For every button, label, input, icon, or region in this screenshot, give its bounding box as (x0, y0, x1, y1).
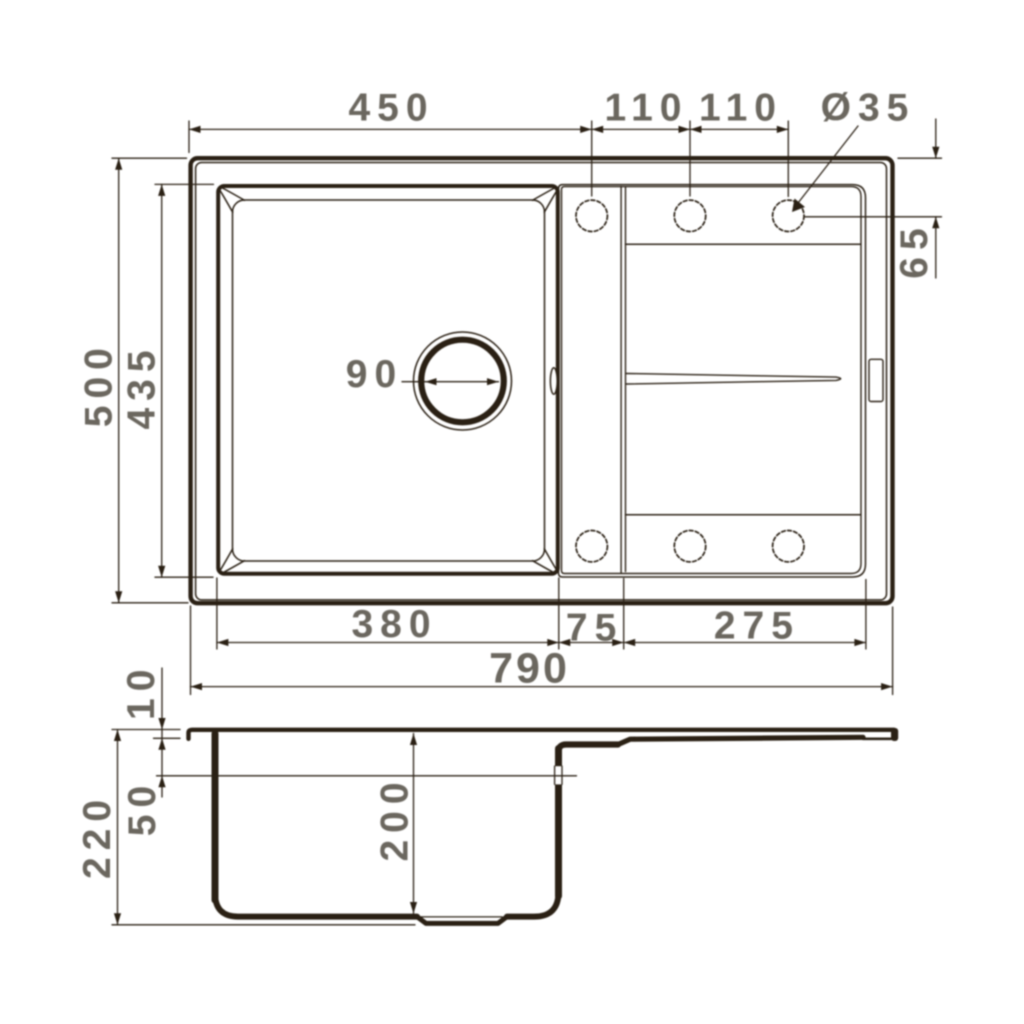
svg-text:10: 10 (120, 663, 163, 720)
svg-text:435: 435 (121, 343, 164, 429)
svg-text:110: 110 (699, 87, 783, 130)
svg-text:90: 90 (346, 353, 403, 396)
svg-text:50: 50 (121, 779, 164, 836)
svg-text:220: 220 (76, 793, 119, 879)
svg-text:790: 790 (489, 645, 570, 693)
svg-text:110: 110 (605, 87, 689, 130)
svg-text:Ø35: Ø35 (821, 87, 916, 130)
svg-text:275: 275 (714, 605, 800, 648)
svg-text:500: 500 (78, 341, 121, 427)
svg-text:65: 65 (893, 221, 936, 278)
svg-text:75: 75 (566, 607, 623, 650)
svg-text:380: 380 (351, 603, 437, 646)
svg-text:450: 450 (348, 87, 434, 130)
svg-text:200: 200 (374, 775, 417, 861)
